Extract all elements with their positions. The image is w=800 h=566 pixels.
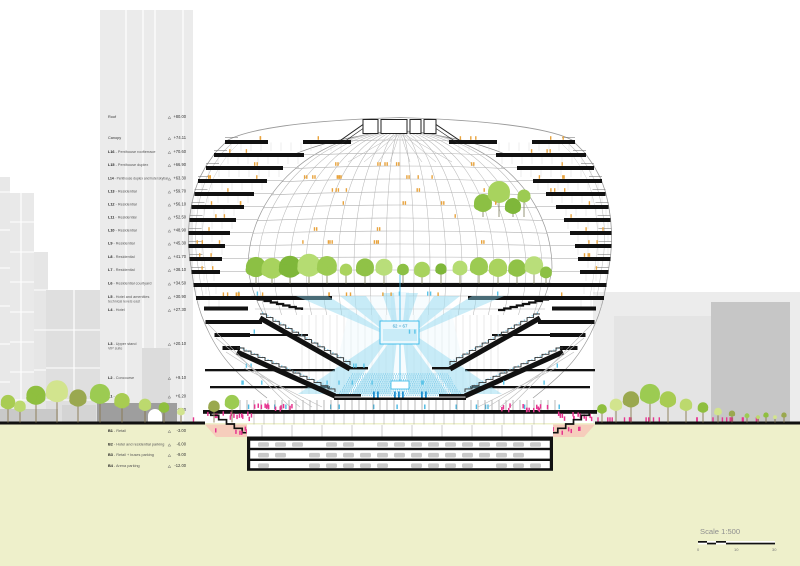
svg-text:L2 - Concourse: L2 - Concourse [108, 376, 134, 380]
svg-text:L4 - Hotel: L4 - Hotel [108, 308, 125, 312]
svg-text:+38.10: +38.10 [173, 267, 186, 272]
svg-text:B4 - Arena parking: B4 - Arena parking [108, 464, 140, 468]
svg-text:+20.10: +20.10 [173, 341, 186, 346]
svg-text:technical levels east: technical levels east [108, 300, 140, 304]
svg-text:+63.30: +63.30 [173, 176, 186, 181]
svg-text:L11 - Residential: L11 - Residential [108, 216, 137, 220]
svg-text:L6 - Residential courtyard: L6 - Residential courtyard [108, 282, 151, 286]
svg-text:Scale 1:500: Scale 1:500 [700, 527, 740, 536]
svg-text:+70.60: +70.60 [173, 149, 186, 154]
svg-text:+48.90: +48.90 [173, 228, 186, 233]
svg-text:L3 - Upper stand: L3 - Upper stand [108, 342, 137, 346]
svg-text:L5 - Hotel and amenities: L5 - Hotel and amenities [108, 295, 149, 299]
svg-text:L13 - Residential: L13 - Residential [108, 190, 137, 194]
svg-text:+59.70: +59.70 [173, 189, 186, 194]
svg-text:+41.70: +41.70 [173, 254, 186, 259]
svg-text:L12 - Residential: L12 - Residential [108, 203, 137, 207]
svg-text:62 = 67: 62 = 67 [393, 324, 408, 329]
svg-text:+80.00: +80.00 [173, 114, 186, 119]
svg-text:B3 - Retail + buses parking: B3 - Retail + buses parking [108, 453, 154, 457]
svg-text:L8 - Residential: L8 - Residential [108, 255, 135, 259]
svg-text:Roof: Roof [108, 115, 117, 119]
svg-text:+56.10: +56.10 [173, 202, 186, 207]
svg-text:B1 - Retail: B1 - Retail [108, 429, 126, 433]
svg-text:10: 10 [734, 547, 739, 552]
svg-text:30: 30 [772, 547, 777, 552]
svg-text:+74.11: +74.11 [174, 135, 187, 140]
svg-text:+34.50: +34.50 [173, 281, 186, 286]
svg-text:+45.30: +45.30 [173, 241, 186, 246]
svg-text:-3.00: -3.00 [177, 428, 187, 433]
svg-text:L9 - Residential: L9 - Residential [108, 242, 135, 246]
svg-text:L7 - Residential: L7 - Residential [108, 268, 135, 272]
svg-text:+6.20: +6.20 [176, 394, 187, 399]
svg-text:+27.30: +27.30 [173, 307, 186, 312]
svg-text:Canopy: Canopy [108, 136, 121, 140]
svg-text:+9.10: +9.10 [176, 375, 187, 380]
svg-text:+66.90: +66.90 [173, 162, 186, 167]
svg-text:-12.00: -12.00 [174, 463, 186, 468]
svg-text:B2 - Hotel and residential par: B2 - Hotel and residential parking [108, 443, 164, 447]
svg-text:+30.90: +30.90 [173, 294, 186, 299]
svg-text:L16 - Penthouse roofterrace: L16 - Penthouse roofterrace [108, 150, 156, 154]
svg-text:-6.00: -6.00 [177, 442, 187, 447]
svg-text:-9.00: -9.00 [177, 452, 187, 457]
svg-text:L15 - Penthouse duplex: L15 - Penthouse duplex [108, 163, 148, 167]
svg-text:L14 - Penthouse duplex and hot: L14 - Penthouse duplex and hotel skybar [108, 177, 169, 181]
svg-text:VIP suite: VIP suite [108, 347, 122, 351]
svg-text:+52.50: +52.50 [173, 215, 186, 220]
svg-text:L10 - Residential: L10 - Residential [108, 229, 137, 233]
